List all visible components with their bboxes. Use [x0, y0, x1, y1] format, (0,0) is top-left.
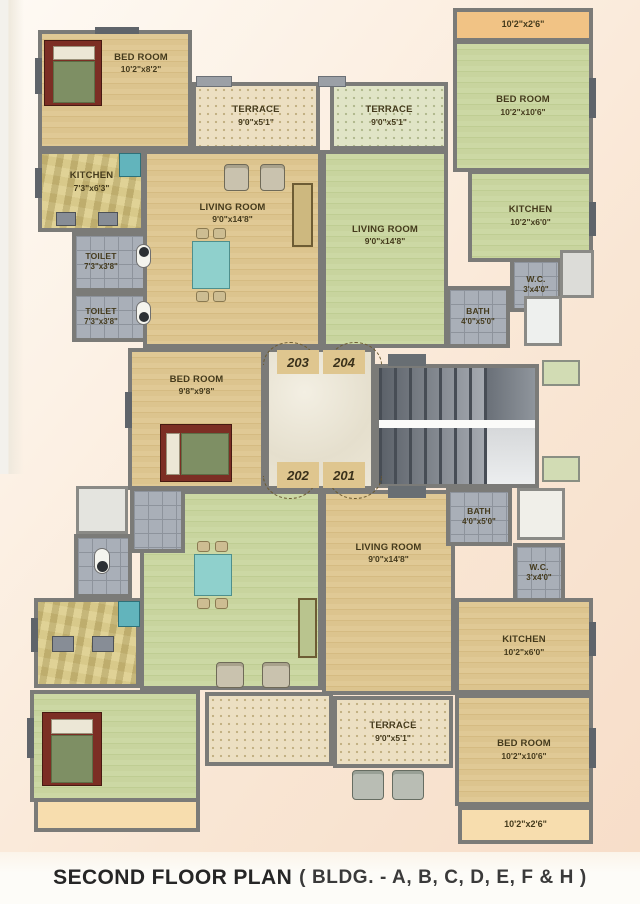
room-dim: 7'3"x6'3": [74, 183, 110, 194]
stair-divider: [379, 420, 535, 428]
unit-number-202: 202: [277, 462, 319, 488]
toilet-fixture: [94, 548, 110, 574]
bed: [42, 712, 102, 786]
room-dim: 9'0"x5'1": [375, 733, 411, 744]
room-dim: 9'0"x5'1": [238, 117, 274, 128]
door-mat: [388, 354, 426, 366]
dining-chair: [215, 598, 228, 609]
room-dim: 9'0"x5'1": [371, 117, 407, 128]
balcony-dim: 10'2"x2'6": [502, 19, 545, 31]
balcony-dim: 10'2"x2'6": [504, 819, 547, 831]
room-living-201: LIVING ROOM 9'0"x14'8": [322, 490, 455, 695]
room-dim: 4'0"x5'0": [462, 517, 496, 527]
room-kitchen-204: KITCHEN 10'2"x6'0": [468, 170, 593, 262]
stair-landing-upper: [487, 368, 535, 420]
staircase: [375, 364, 539, 488]
armchair: [260, 164, 285, 191]
plan-title: SECOND FLOOR PLAN: [53, 866, 292, 890]
room-label: W.C.: [526, 274, 545, 285]
planter-ledge: [542, 360, 580, 386]
room-label: TOILET: [85, 306, 116, 317]
room-terrace-201: TERRACE 9'0"x5'1": [333, 696, 453, 768]
room-label: TERRACE: [232, 104, 279, 116]
room-label: KITCHEN: [502, 634, 546, 646]
room-label: BED ROOM: [170, 374, 224, 386]
room-label: BATH: [467, 506, 491, 517]
title-bar: SECOND FLOOR PLAN ( BLDG. - A, B, C, D, …: [0, 852, 640, 904]
room-terrace-204: TERRACE 9'0"x5'1": [330, 82, 448, 150]
room-dim: 10'2"x8'2": [121, 64, 161, 75]
room-label: W.C.: [529, 562, 548, 573]
room-shower-202: [130, 487, 185, 553]
dining-chair: [215, 541, 228, 552]
kitchen-sink: [56, 212, 76, 226]
page-edge: [0, 0, 24, 474]
room-dim: 10'2"x10'6": [501, 751, 546, 762]
room-bath-204: BATH 4'0"x5'0": [446, 286, 510, 348]
dining-chair: [197, 598, 210, 609]
room-label: BED ROOM: [114, 52, 168, 64]
planter-box: [196, 76, 232, 87]
room-bath-201: BATH 4'0"x5'0": [446, 488, 512, 546]
dining-chair: [196, 228, 209, 239]
kitchen-sink: [92, 636, 114, 652]
unit-number-201: 201: [323, 462, 365, 488]
duct: [560, 250, 594, 298]
window: [27, 718, 34, 758]
armchair: [216, 662, 244, 688]
balcony-204: 10'2"x2'6": [453, 8, 593, 42]
room-bedroom-204: BED ROOM 10'2"x10'6": [453, 40, 593, 172]
window: [35, 58, 42, 94]
room-label: BED ROOM: [496, 94, 550, 106]
unit-number-204: 204: [323, 350, 365, 374]
kitchen-platform: [119, 153, 141, 177]
room-label: TERRACE: [369, 720, 416, 732]
room-dim: 10'2"x6'0": [504, 647, 544, 658]
room-label: TOILET: [85, 251, 116, 262]
lift-shaft: [524, 296, 562, 346]
planter-box: [318, 76, 346, 87]
armchair: [352, 770, 384, 800]
window: [95, 27, 139, 34]
room-dim: 9'0"x14'8": [365, 236, 405, 247]
room-dim: 9'0"x14'8": [212, 214, 252, 225]
window: [589, 728, 596, 768]
room-dim: 10'2"x10'6": [500, 107, 545, 118]
window: [589, 202, 596, 236]
kitchen-sink: [52, 636, 74, 652]
unit-number-203: 203: [277, 350, 319, 374]
bed: [44, 40, 102, 106]
balcony-202: [34, 798, 200, 832]
door-mat: [388, 486, 426, 498]
room-label: BED ROOM: [497, 738, 551, 750]
room-dim: 4'0"x5'0": [461, 317, 495, 327]
armchair: [392, 770, 424, 800]
room-terrace-203: TERRACE 9'0"x5'1": [192, 82, 320, 150]
dining-chair: [196, 291, 209, 302]
room-label: KITCHEN: [509, 204, 553, 216]
room-label: LIVING ROOM: [352, 224, 418, 236]
room-wc-201: W.C. 3'x4'0": [513, 543, 565, 603]
window: [589, 622, 596, 656]
lift-shaft: [76, 486, 128, 534]
dining-table: [192, 241, 230, 289]
room-kitchen-201: KITCHEN 10'2"x6'0": [455, 598, 593, 694]
room-label: LIVING ROOM: [355, 542, 421, 554]
room-living-204: LIVING ROOM 9'0"x14'8": [322, 150, 448, 348]
room-dim: 10'2"x6'0": [510, 217, 550, 228]
dining-chair: [213, 291, 226, 302]
room-label: BATH: [466, 306, 490, 317]
room-label: KITCHEN: [70, 170, 114, 182]
room-dim: 7'3"x3'8": [84, 262, 118, 272]
plan-title-buildings: ( BLDG. - A, B, C, D, E, F & H ): [299, 867, 587, 889]
room-label: LIVING ROOM: [199, 202, 265, 214]
armchair: [262, 662, 290, 688]
stair-landing-lower: [487, 428, 535, 484]
room-dim: 9'0"x14'8": [368, 554, 408, 565]
room-dim: 3'x4'0": [523, 285, 548, 295]
room-dim: 7'3"x3'8": [84, 317, 118, 327]
balcony-201: 10'2"x2'6": [458, 806, 593, 844]
dining-table: [194, 554, 232, 596]
lift-shaft: [517, 488, 565, 540]
room-dim: 3'x4'0": [526, 573, 551, 583]
kitchen-sink: [98, 212, 118, 226]
window: [31, 618, 38, 652]
window: [589, 78, 596, 118]
toilet-fixture: [136, 244, 151, 268]
window: [125, 392, 132, 428]
window: [35, 168, 42, 198]
cabinet: [298, 598, 317, 658]
toilet-fixture: [136, 301, 151, 325]
dining-chair: [197, 541, 210, 552]
room-label: TERRACE: [365, 104, 412, 116]
bed: [160, 424, 232, 482]
cabinet: [292, 183, 313, 247]
room-dim: 9'8"x9'8": [179, 386, 215, 397]
dining-chair: [213, 228, 226, 239]
kitchen-platform: [118, 601, 140, 627]
room-bedroom-201: BED ROOM 10'2"x10'6": [455, 694, 593, 806]
armchair: [224, 164, 249, 191]
room-terrace-202: [205, 692, 333, 766]
planter-ledge: [542, 456, 580, 482]
